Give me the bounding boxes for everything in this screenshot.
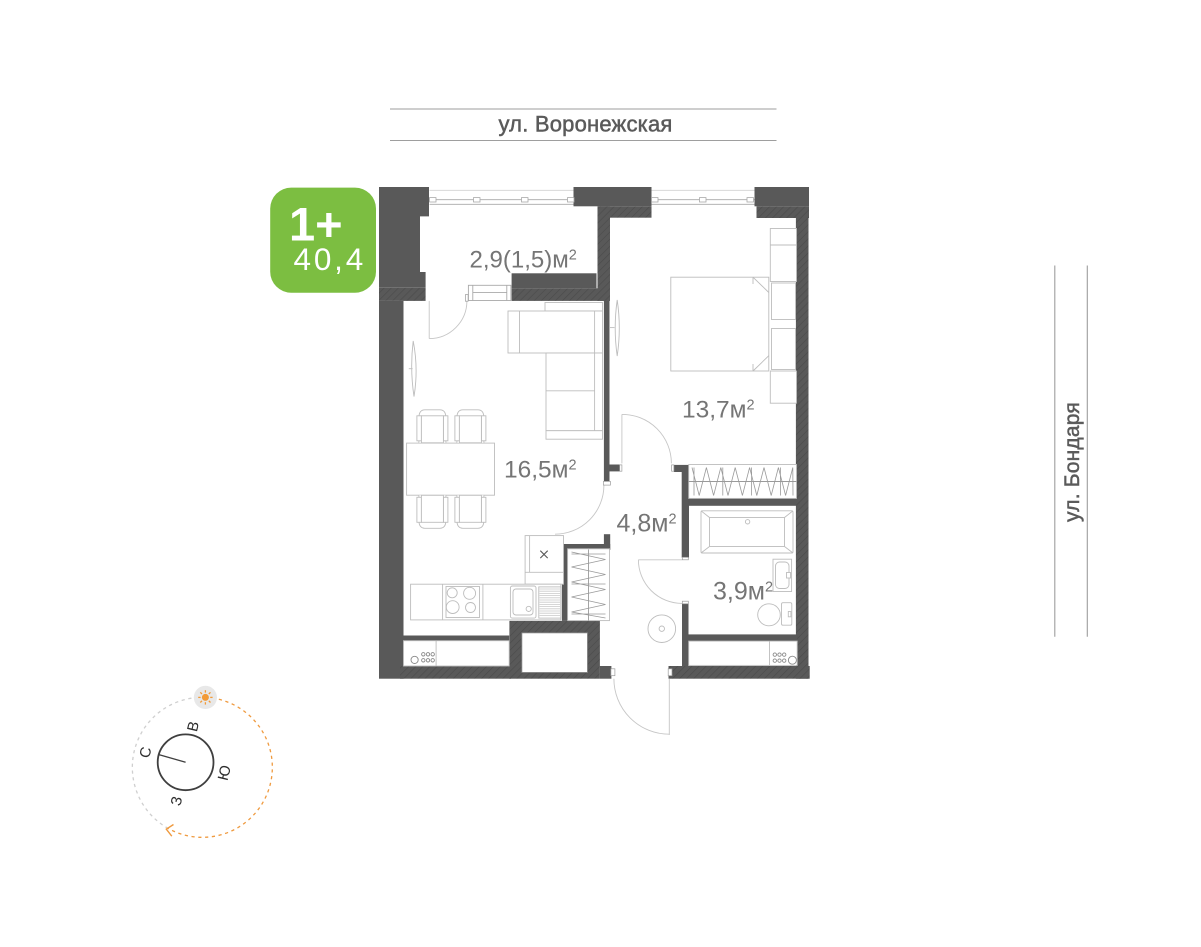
svg-text:4,8м2: 4,8м2	[617, 510, 677, 538]
svg-text:13,7м2: 13,7м2	[682, 397, 755, 424]
svg-text:ул. Воронежская: ул. Воронежская	[498, 112, 672, 137]
svg-text:ул. Бондаря: ул. Бондаря	[1061, 402, 1084, 522]
svg-text:2,9(1,5)м2: 2,9(1,5)м2	[470, 247, 577, 274]
svg-text:16,5м2: 16,5м2	[504, 456, 577, 483]
svg-text:3,9м2: 3,9м2	[713, 578, 773, 606]
svg-text:40,4: 40,4	[294, 241, 367, 277]
